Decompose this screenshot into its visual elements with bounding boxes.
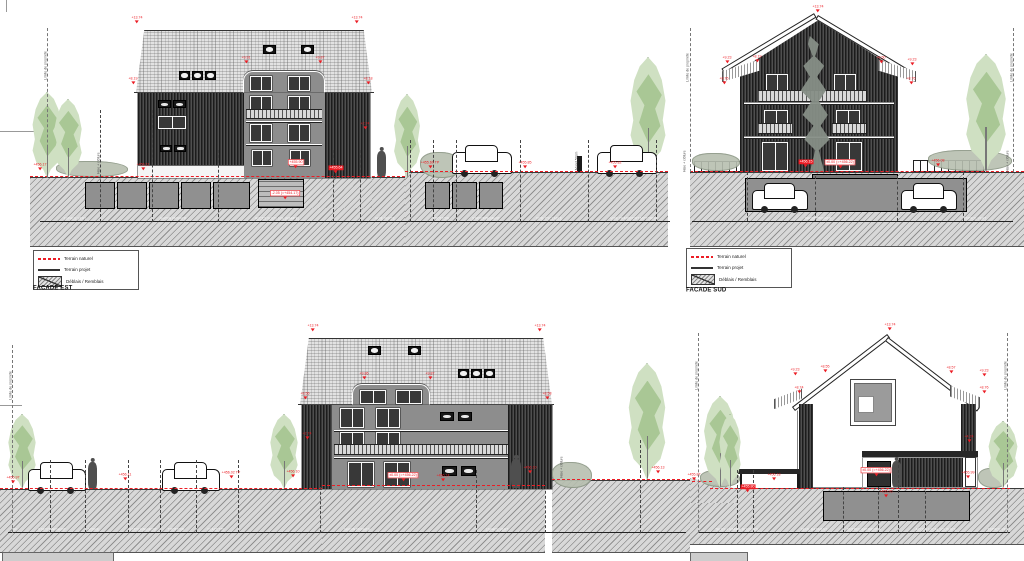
elevation-value: +8.76 [906, 77, 915, 81]
tree-trunk [985, 127, 987, 172]
ground-zone-label: VOIE VERTE [375, 217, 395, 220]
boundary-dash [640, 440, 641, 533]
elevation-marker: +456.17 [29, 160, 51, 170]
marker-triangle-icon [294, 165, 298, 168]
terrain-projet-swatch [38, 269, 60, 271]
elevation-marker: +9.91 [238, 53, 253, 63]
marker-triangle-icon [428, 165, 432, 168]
ground-zone-label: ESPACE VERT [964, 217, 987, 220]
marker-triangle-icon [303, 396, 307, 399]
elevation-value: +4.24 [964, 435, 973, 439]
boundary-dash [456, 140, 457, 222]
legend-row: Déblais / Remblais [691, 275, 787, 284]
datum-line [40, 221, 670, 222]
ground-zone-label: TROTTOIR [168, 528, 185, 531]
ground-zone-label: STATIONNEMENT [38, 528, 66, 531]
marker-triangle-icon [874, 473, 878, 476]
vertical-label: Limite de propriété [9, 371, 12, 400]
elevation-value: +456.08 [931, 159, 944, 163]
legend-label: Déblais / Remblais [66, 279, 104, 284]
elevation-marker: +9.87 [422, 369, 437, 379]
car [901, 190, 957, 210]
marker-triangle-icon [401, 478, 405, 481]
boundary-dash [588, 140, 589, 222]
siding-panel [799, 404, 813, 488]
terrain-line [690, 171, 1024, 172]
ground-zone-label: VOIE CYCLABLE [536, 217, 562, 220]
elevation-value: +455.64 [329, 165, 344, 170]
deblais-swatch [691, 274, 715, 285]
marker-triangle-icon [838, 165, 842, 168]
elevation-marker: +8.18 [360, 74, 375, 84]
forecourt-post [797, 474, 799, 488]
boundary-dash [963, 172, 964, 221]
skylight [205, 71, 216, 80]
skylight [471, 369, 482, 378]
marker-triangle-icon [725, 60, 729, 63]
ground-zone-label: TR. [12, 528, 17, 531]
vertical-label: Haie + clôture [97, 152, 100, 174]
balcony-rail [758, 123, 792, 134]
elevation-marker: +455.95 [875, 487, 897, 497]
elevation-value: ±0.00 (=+456.22) [388, 472, 419, 478]
ground-zone-label: JARDIN PRIVATIF [159, 217, 186, 220]
balcony-rail [832, 123, 866, 134]
elevation-value: +9.23 [722, 56, 731, 60]
marker-triangle-icon [804, 164, 808, 167]
legend-label: Terrain naturel [717, 254, 746, 259]
boundary-dash [737, 470, 738, 533]
elevation-marker: +13.74 [348, 13, 367, 23]
elevation-marker: +9.23 [719, 53, 734, 63]
marker-triangle-icon [141, 167, 145, 170]
marker-triangle-icon [755, 59, 759, 62]
marker-triangle-icon [305, 436, 309, 439]
marker-triangle-icon [334, 170, 338, 173]
elevation-marker: +456.02 TP [215, 468, 246, 478]
ground-zone-label: ESPACE VERT [988, 528, 1011, 531]
elevation-marker: +13.74 [531, 321, 550, 331]
ground-zone-label: ESPACE VERT [64, 217, 87, 220]
elevation-marker: +455.85 [514, 158, 536, 168]
elevation-value: +9.87 [315, 56, 324, 60]
elevation-marker: +8.74 [791, 383, 806, 393]
vertical-label: Limite de propriété [1004, 361, 1007, 390]
window [250, 76, 272, 91]
marker-triangle-icon [523, 165, 527, 168]
window-pane [858, 396, 874, 413]
vertical-label: Limite de propriété [44, 51, 47, 80]
vertical-label: Haie + clôture [1006, 150, 1009, 172]
elevation-value: +455.97 [6, 476, 19, 480]
marker-triangle-icon [966, 475, 970, 478]
small-window [173, 100, 186, 108]
elevation-marker: +13.74 [128, 13, 147, 23]
marker-triangle-icon [362, 376, 366, 379]
legend-facade-est: Terrain naturel Terrain projet Déblais /… [33, 250, 139, 290]
legend-cut [2, 552, 114, 561]
boundary-dash [160, 460, 161, 533]
window [396, 390, 422, 404]
ground-zone-label: ENTREE BATIMENT A [847, 528, 881, 531]
marker-triangle-icon [229, 475, 233, 478]
elevation-marker: +13.74 [304, 321, 323, 331]
cellar-box [425, 182, 450, 209]
tree-trunk [730, 460, 732, 488]
terrain-naturel-swatch [691, 256, 713, 258]
elevation-value: +456.18 [767, 473, 780, 477]
elevation-marker: +455.64 [324, 162, 349, 173]
elevation-marker: +8.57 [943, 363, 958, 373]
elevation-marker: -2.05 (=+454.17) [260, 186, 310, 199]
marker-triangle-icon [131, 81, 135, 84]
small-window [440, 412, 454, 421]
elevation-value: +2.74 [302, 432, 311, 436]
elevation-value: +8.74 [794, 386, 803, 390]
marker-triangle-icon [613, 165, 617, 168]
vertical-label: Haie + clôture [683, 150, 686, 172]
ground-zone-label: VOIE TRANSPORT MOTORISE [610, 217, 657, 220]
terrain-projet-swatch [691, 267, 713, 269]
legend-row: Terrain projet [691, 264, 787, 273]
boundary-dash [433, 140, 434, 222]
elevation-marker: +9.23 [976, 366, 991, 376]
elevation-value: +8.76 [979, 386, 988, 390]
small-window [458, 412, 472, 421]
marker-triangle-icon [936, 163, 940, 166]
elevation-marker: +455.97 [2, 473, 24, 483]
elevation-value: +13.74 [351, 16, 362, 20]
basement-slab [812, 174, 898, 179]
boundary-dash [360, 150, 361, 222]
elevation-marker: +455.60 TP [414, 158, 445, 168]
legend-cut [690, 552, 748, 561]
elevation-value: +13.74 [534, 324, 545, 328]
marker-triangle-icon [816, 9, 820, 12]
elevation-value: +456.10 [286, 470, 299, 474]
elevation-value: +8.18 [363, 77, 372, 81]
legend-label: Terrain projet [717, 266, 743, 271]
boundary-dash [85, 460, 86, 533]
marker-triangle-icon [884, 494, 888, 497]
person-silhouette [377, 151, 386, 177]
ground-zone-label: JARDIN PRIVATIF [343, 528, 370, 531]
drawing-sheet: ESPACE VERTJARDIN PRIVATIFACCES SOUS-SOL… [0, 0, 1024, 561]
cellar-box [479, 182, 503, 209]
marker-triangle-icon [967, 439, 971, 442]
elevation-value: +456.10 [523, 466, 536, 470]
elevation-value: +456.17 [33, 163, 46, 167]
ground-zone-label: ACCES LOCAL SOUS-SOL [916, 528, 957, 531]
elevation-value: +455.85 [518, 161, 531, 165]
vertical-label: Limite de propriété [695, 361, 698, 390]
boundary-dash [656, 140, 657, 222]
boundary-dash [897, 176, 898, 221]
terrain-line [552, 479, 690, 480]
floor-slab [246, 143, 322, 146]
skylight [408, 346, 421, 355]
boundary-dash [843, 487, 844, 533]
elevation-value: +13.74 [884, 323, 895, 327]
elevation-marker: +455.80 [736, 481, 761, 492]
ground-zone-label: ESPACE VERT [486, 528, 509, 531]
window [288, 76, 310, 91]
property-limit-line [1013, 28, 1014, 172]
elevation-value: +8.19 [752, 55, 761, 59]
elevation-marker: +9.23 [787, 365, 802, 375]
elevation-marker: +8.19 [125, 74, 140, 84]
elevation-value: +9.23 [979, 369, 988, 373]
elevation-marker: +456.08 [927, 156, 949, 166]
terrain-line [322, 485, 545, 486]
elevation-value: +456.11 [137, 163, 150, 167]
marker-triangle-icon [910, 62, 914, 65]
cellar-box [181, 182, 211, 209]
property-limit-line [690, 28, 691, 172]
cellar-box [149, 182, 179, 209]
datum-line [698, 532, 1010, 533]
marker-triangle-icon [772, 477, 776, 480]
window [252, 150, 272, 166]
elevation-value: +456.13 [651, 466, 664, 470]
elevation-marker: +8.58 [539, 389, 554, 399]
elevation-value: +8.57 [946, 366, 955, 370]
elevation-marker: +8.50 [873, 53, 888, 63]
ground-zone-label: TALUS + RAMPE SOUS-SOL [715, 528, 759, 531]
skylight [368, 346, 381, 355]
marker-triangle-icon [528, 470, 532, 473]
legend-label: Terrain projet [64, 268, 90, 273]
elevation-marker: +456.14 [432, 471, 454, 481]
terrain-line [692, 481, 712, 482]
window [250, 124, 272, 142]
marker-triangle-icon [38, 167, 42, 170]
siding-panel [302, 405, 332, 489]
marker-triangle-icon [244, 60, 248, 63]
ground-zone-label: STATIONNEMENT [129, 528, 157, 531]
marker-triangle-icon [311, 328, 315, 331]
elevation-value: +8.58 [542, 392, 551, 396]
drawing-title-sud: FACADE SUD [686, 287, 726, 293]
elevation-value: +8.19 [128, 77, 137, 81]
ground-zone-label: STATIONNEMENT [472, 217, 500, 220]
terrain-line [0, 488, 322, 489]
marker-triangle-icon [291, 474, 295, 477]
elevation-marker: +455.90 [283, 155, 310, 168]
marker-triangle-icon [722, 81, 726, 84]
tree [266, 414, 302, 489]
ground-hatch [322, 486, 545, 553]
elevation-marker: +8.19 [749, 52, 764, 62]
elevation-value: +2.74 [360, 122, 369, 126]
small-window [174, 145, 186, 152]
elevation-marker: +456.10 [282, 467, 304, 477]
datum-line [8, 532, 686, 533]
tree-trunk [1003, 463, 1005, 488]
marker-triangle-icon [823, 369, 827, 372]
elevation-marker: +455.82 [604, 158, 626, 168]
marker-triangle-icon [746, 489, 750, 492]
marker-triangle-icon [441, 478, 445, 481]
elevation-value: -2.05 (=+454.17) [270, 190, 300, 196]
boundary-dash [520, 140, 521, 222]
elevation-value: +9.86 [359, 372, 368, 376]
skylight [484, 369, 495, 378]
elevation-marker: +13.74 [881, 320, 900, 330]
elevation-marker: +8.76 [716, 74, 731, 84]
legend-row: Terrain projet [38, 266, 134, 275]
floor-slab [334, 456, 508, 459]
skylight [263, 45, 276, 54]
elevation-value: +9.23 [790, 368, 799, 372]
boundary-dash [747, 172, 748, 221]
elevation-marker: +2.74 [357, 119, 372, 129]
elevation-value: ±0.00 (=+456.22) [861, 467, 892, 473]
elevation-marker: +9.23 [904, 55, 919, 65]
elevation-value: +455.90 [288, 159, 304, 165]
elevation-marker: ±0.00 (=+456.22) [378, 468, 429, 481]
marker-triangle-icon [538, 328, 542, 331]
elevation-marker: ±0.00 (=+456.22) [851, 463, 902, 476]
small-window [160, 145, 172, 152]
door [762, 142, 788, 171]
elevation-value: +8.76 [719, 77, 728, 81]
marker-triangle-icon [11, 480, 15, 483]
skylight [458, 369, 469, 378]
ground-hatch [0, 489, 322, 553]
elevation-value: +8.50 [876, 56, 885, 60]
elevation-value: +9.87 [425, 372, 434, 376]
page-tick [6, 0, 7, 12]
marker-triangle-icon [428, 376, 432, 379]
window [288, 124, 310, 142]
elevation-marker: +9.86 [356, 369, 371, 379]
skylight [192, 71, 203, 80]
boundary-dash [476, 470, 477, 533]
elevation-value: +455.87 [687, 473, 700, 477]
datum-line [692, 221, 1013, 222]
boundary-dash [815, 176, 816, 221]
elevation-marker: +13.74 [809, 2, 828, 12]
elevation-marker: +456.11 [114, 470, 135, 480]
elevation-value: +455.80 [741, 484, 756, 489]
elevation-value: +13.74 [307, 324, 318, 328]
elevation-marker: +455.87 [683, 470, 705, 480]
elevation-marker: +455.99 [957, 468, 979, 478]
elevation-value: +8.55 [820, 365, 829, 369]
terrain-line [405, 171, 668, 172]
balcony-rail [334, 444, 508, 455]
elevation-value: +9.23 [907, 58, 916, 62]
marker-triangle-icon [793, 372, 797, 375]
slat-wall [899, 458, 963, 487]
tree-trunk [407, 146, 409, 178]
cellar-box [117, 182, 147, 209]
ground-zone-label: VOIRIE [88, 528, 99, 531]
ground-hatch [552, 480, 690, 553]
small-window [158, 100, 171, 108]
marker-triangle-icon [355, 20, 359, 23]
door [348, 462, 374, 487]
person-silhouette [88, 462, 97, 489]
elevation-marker: +456.18 [763, 470, 785, 480]
legend-row: Terrain naturel [38, 254, 134, 263]
ground-zone-label: JARDIN PRIVATIF [804, 217, 831, 220]
elevation-value: +13.74 [131, 16, 142, 20]
elevation-marker: +2.74 [299, 429, 314, 439]
boundary-dash [545, 481, 546, 533]
elevation-value: ±0.00 (=+456.22) [825, 159, 856, 165]
marker-triangle-icon [982, 373, 986, 376]
elevation-value: +456.02 TP [222, 471, 241, 475]
boundary-dash [320, 487, 321, 533]
elevation-value: +9.91 [241, 56, 250, 60]
ground-zone-label: ACCES SOUS-SOL (RAMPE) [255, 217, 299, 220]
terrain-naturel-swatch [38, 258, 60, 260]
boundary-dash [333, 150, 334, 222]
window [158, 116, 186, 129]
shrub [552, 462, 592, 488]
marker-triangle-icon [692, 477, 696, 480]
marker-triangle-icon [949, 370, 953, 373]
boundary-dash [50, 460, 51, 533]
vertical-label: Muret 50cm [575, 152, 578, 170]
elevation-marker: +456.10 [519, 463, 541, 473]
elevation-marker: +9.87 [312, 53, 327, 63]
window [376, 408, 400, 428]
elevation-value: +455.99 [961, 471, 974, 475]
elevation-marker: +456.13 [647, 463, 669, 473]
tree-trunk [647, 436, 649, 480]
elevation-marker: +456.11 [132, 160, 153, 170]
marker-triangle-icon [363, 126, 367, 129]
marker-triangle-icon [123, 477, 127, 480]
marker-triangle-icon [366, 81, 370, 84]
boundary-dash [196, 460, 197, 533]
ground-zone-label: TROTTOIR [433, 217, 450, 220]
vertical-label: Limite de propriété [1010, 53, 1013, 82]
elevation-marker: +8.55 [817, 362, 832, 372]
legend-label: Terrain naturel [64, 256, 93, 261]
floor-slab [246, 120, 322, 123]
marker-triangle-icon [135, 20, 139, 23]
boundary-dash [753, 470, 754, 533]
marker-triangle-icon [283, 196, 287, 199]
boundary-dash [925, 491, 926, 533]
elevation-marker: ±0.00 (=+456.22) [815, 155, 866, 168]
car [752, 190, 808, 210]
legend-label: Déblais / Remblais [719, 277, 757, 282]
elevation-value: +455.82 [608, 161, 621, 165]
elevation-value: +455.95 [879, 490, 892, 494]
ground-zone-label: PLACETTE [207, 528, 224, 531]
window [360, 390, 386, 404]
marker-triangle-icon [318, 60, 322, 63]
shrub [692, 153, 740, 171]
drawing-title-est: FACADE EST [33, 285, 72, 291]
page-tick [0, 405, 22, 406]
elevation-value: +456.15 [799, 159, 814, 164]
elevation-value: +456.14 [436, 474, 449, 478]
balcony-rail [246, 109, 322, 119]
marker-triangle-icon [879, 60, 883, 63]
vertical-label: Haie + clôture [560, 456, 563, 478]
elevation-value: +455.60 TP [421, 161, 440, 165]
elevation-marker: +8.76 [976, 383, 991, 393]
legend-facade-sud: Terrain naturel Terrain projet Déblais /… [686, 248, 792, 288]
marker-triangle-icon [982, 390, 986, 393]
elevation-value: +8.56 [300, 392, 309, 396]
